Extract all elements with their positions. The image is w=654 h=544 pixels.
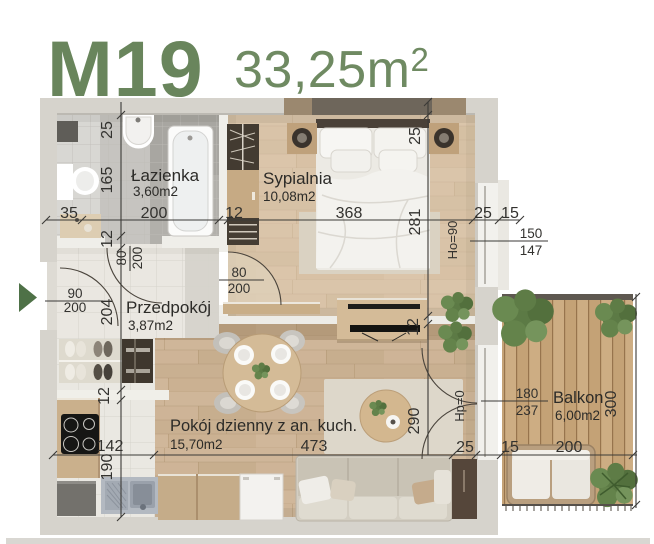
svg-text:200: 200	[556, 439, 583, 456]
svg-text:Sypialnia: Sypialnia	[263, 169, 333, 188]
svg-text:6,00m2: 6,00m2	[555, 408, 600, 423]
svg-text:80: 80	[114, 250, 129, 265]
svg-text:15: 15	[501, 205, 519, 222]
svg-text:150: 150	[520, 226, 543, 241]
svg-text:3,60m2: 3,60m2	[133, 184, 178, 199]
svg-text:200: 200	[228, 281, 251, 296]
svg-text:473: 473	[301, 438, 328, 455]
svg-text:Ho=90: Ho=90	[445, 221, 460, 260]
svg-text:190: 190	[99, 454, 116, 481]
svg-text:12: 12	[225, 205, 243, 222]
svg-text:80: 80	[231, 265, 246, 280]
svg-text:Przedpokój: Przedpokój	[126, 298, 211, 317]
svg-text:12: 12	[99, 230, 116, 248]
svg-text:200: 200	[141, 205, 168, 222]
svg-text:147: 147	[520, 243, 543, 258]
svg-text:142: 142	[97, 438, 124, 455]
svg-text:Hp=0: Hp=0	[452, 390, 467, 421]
svg-text:12: 12	[405, 318, 422, 336]
svg-text:Pokój dzienny z an. kuch.: Pokój dzienny z an. kuch.	[170, 417, 357, 435]
svg-text:237: 237	[516, 403, 539, 418]
svg-text:200: 200	[64, 300, 87, 315]
svg-text:200: 200	[130, 247, 145, 270]
svg-text:90: 90	[67, 286, 82, 301]
svg-text:204: 204	[99, 299, 116, 326]
svg-text:368: 368	[336, 205, 363, 222]
svg-text:25: 25	[99, 121, 116, 139]
svg-text:25: 25	[407, 127, 424, 145]
svg-text:281: 281	[407, 209, 424, 236]
svg-text:300: 300	[603, 391, 620, 418]
svg-text:25: 25	[456, 439, 474, 456]
svg-text:10,08m2: 10,08m2	[263, 189, 316, 204]
svg-text:15,70m2: 15,70m2	[170, 437, 223, 452]
svg-text:25: 25	[474, 205, 492, 222]
svg-text:165: 165	[99, 167, 116, 194]
svg-text:Balkon: Balkon	[553, 389, 603, 407]
svg-text:33,25m2: 33,25m2	[234, 41, 429, 99]
svg-text:Łazienka: Łazienka	[131, 166, 200, 185]
svg-text:290: 290	[406, 408, 423, 435]
svg-text:180: 180	[516, 386, 539, 401]
svg-text:35: 35	[60, 205, 78, 222]
svg-text:15: 15	[501, 439, 519, 456]
svg-text:12: 12	[96, 387, 113, 405]
svg-text:3,87m2: 3,87m2	[128, 318, 173, 333]
